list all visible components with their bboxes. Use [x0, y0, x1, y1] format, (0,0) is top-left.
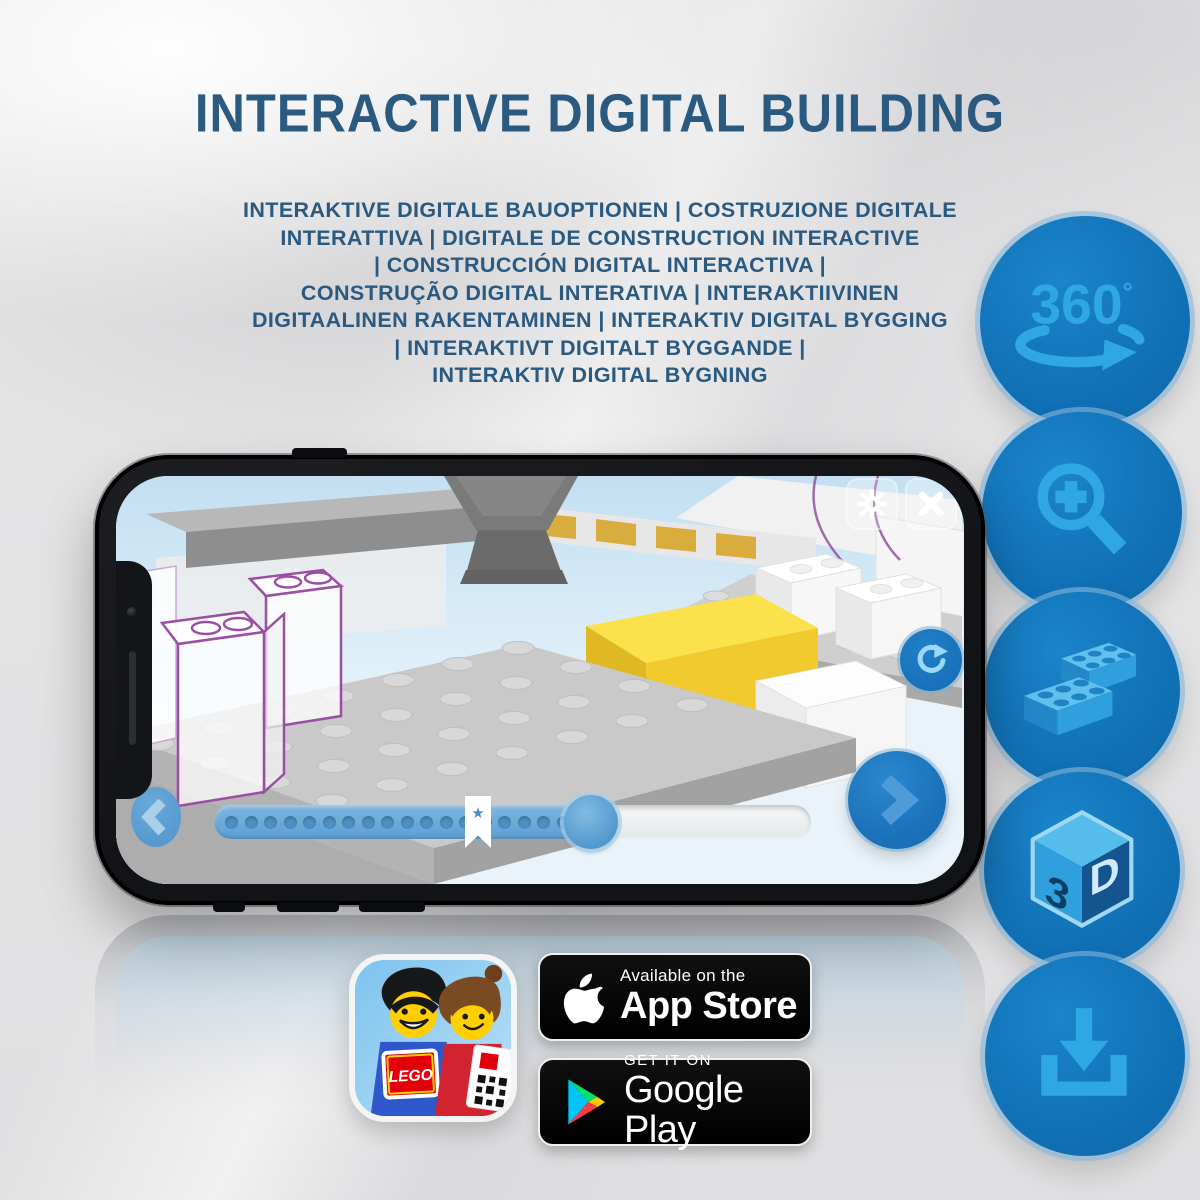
phone-volume-up-button [277, 902, 339, 912]
rotate-reset-icon [913, 642, 949, 678]
google-play-icon [560, 1074, 610, 1130]
phone-power-button [292, 448, 347, 458]
google-play-badge[interactable]: GET IT ON Google Play [538, 1058, 812, 1146]
lego-logo-tile: LEGO [383, 1050, 438, 1098]
camera-icon [127, 607, 137, 617]
phone-notch [116, 561, 152, 799]
zoom-in-icon [1025, 455, 1140, 570]
svg-text:LEGO: LEGO [388, 1067, 433, 1086]
svg-text:3: 3 [1045, 865, 1069, 923]
phone-volume-down-button [359, 902, 425, 912]
apple-icon [560, 969, 606, 1025]
google-play-name: Google Play [624, 1071, 810, 1151]
360-rotation-icon: 360° [1010, 262, 1160, 380]
settings-button[interactable] [846, 478, 898, 530]
app-store-badge[interactable]: Available on the App Store [538, 953, 812, 1041]
feature-3d-view: 3 D [984, 772, 1180, 968]
progress-slider[interactable]: ★ [214, 805, 811, 839]
next-step-button[interactable] [848, 751, 946, 849]
qr-code [474, 1075, 507, 1108]
subtitle-line: INTERAKTIVE DIGITALE BAUOPTIONEN | COSTR… [0, 197, 1200, 225]
close-button[interactable] [905, 478, 957, 530]
feature-360-rotation: 360° [980, 216, 1190, 426]
app-store-name: App Store [620, 987, 797, 1027]
3d-view-icon: 3 D [1024, 806, 1140, 934]
page-title: INTERACTIVE DIGITAL BUILDING [0, 83, 1200, 145]
slider-thumb[interactable] [564, 795, 618, 849]
qr-instructions-card [466, 1045, 511, 1114]
chevron-left-icon [134, 789, 178, 845]
svg-text:360°: 360° [1030, 273, 1133, 335]
phone-screen: ★ [116, 476, 964, 884]
lego-brick-icon [1018, 633, 1146, 747]
lego-app-icon[interactable]: LEGO [349, 954, 517, 1122]
google-play-tagline: GET IT ON [624, 1053, 810, 1069]
close-icon [916, 489, 946, 519]
speaker-slot [129, 651, 136, 745]
feature-zoom [982, 412, 1182, 612]
feature-download [985, 956, 1185, 1156]
app-store-tagline: Available on the [620, 967, 797, 985]
chevron-right-icon [855, 758, 939, 842]
phone-mute-switch [213, 902, 245, 912]
slider-fill [214, 805, 590, 839]
rotate-reset-button[interactable] [900, 629, 962, 691]
feature-brick [984, 592, 1180, 788]
gear-icon [857, 489, 887, 519]
lego-app-artwork: LEGO [355, 960, 511, 1116]
download-icon [1029, 1000, 1141, 1112]
phone-frame: ★ [95, 455, 985, 905]
